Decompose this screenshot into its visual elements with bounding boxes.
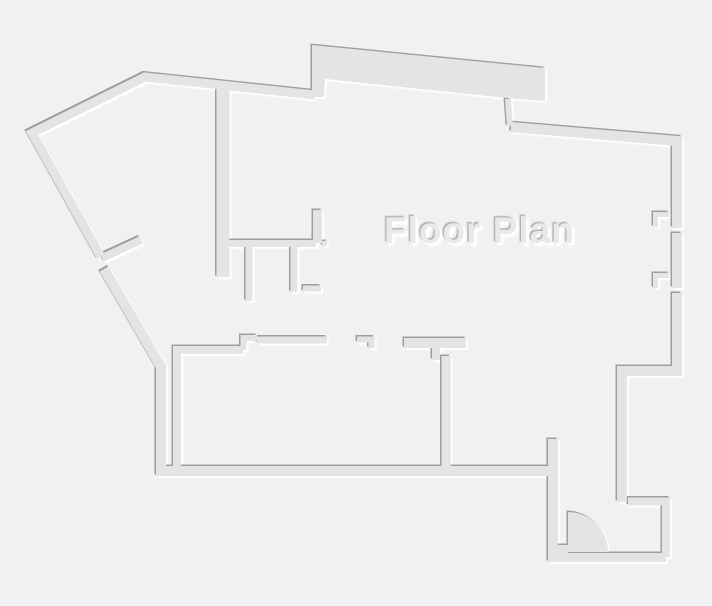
page: { "title": { "text": "Floor Plan" }, "co… bbox=[0, 0, 712, 606]
floor-plan-svg bbox=[0, 0, 712, 606]
floor-plan-canvas: Floor Plan bbox=[0, 0, 712, 606]
plan-title: Floor Plan bbox=[384, 212, 575, 249]
protrusion-step-wall bbox=[508, 99, 510, 126]
floor-background bbox=[0, 0, 712, 606]
